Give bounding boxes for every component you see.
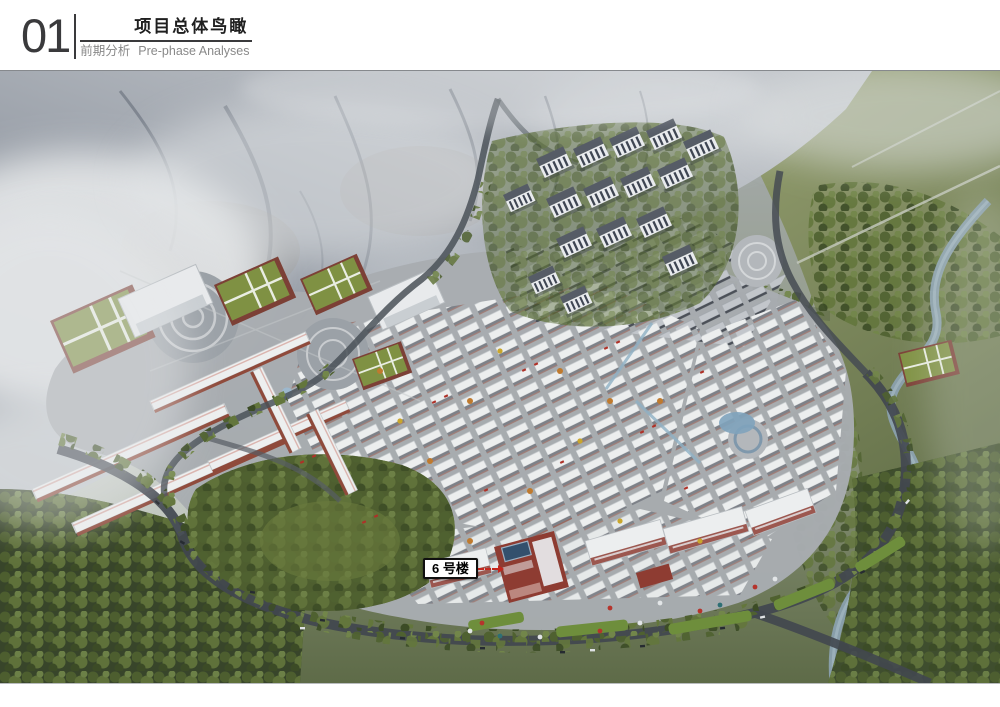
subtitle-zh: 前期分析 bbox=[80, 44, 130, 58]
presentation-page: 01 项目总体鸟瞰 前期分析Pre-phase Analyses bbox=[0, 0, 1000, 707]
aerial-rendering: 6 号楼 bbox=[0, 70, 1000, 684]
pond bbox=[719, 412, 755, 434]
header-title-block: 项目总体鸟瞰 前期分析Pre-phase Analyses bbox=[80, 13, 252, 59]
section-number: 01 bbox=[21, 13, 69, 59]
building-6-label: 6 号楼 bbox=[423, 558, 478, 579]
rendering-canvas bbox=[0, 71, 1000, 683]
page-title: 项目总体鸟瞰 bbox=[80, 16, 252, 38]
subtitle-en: Pre-phase Analyses bbox=[138, 44, 249, 58]
page-header: 01 项目总体鸟瞰 前期分析Pre-phase Analyses bbox=[21, 13, 252, 59]
apartment-towers bbox=[482, 118, 738, 327]
annotation-arrow-line bbox=[478, 568, 498, 570]
header-divider bbox=[74, 14, 76, 59]
page-subtitle: 前期分析Pre-phase Analyses bbox=[80, 43, 252, 59]
building-6-annotation: 6 号楼 bbox=[423, 558, 504, 579]
title-underline bbox=[80, 40, 252, 42]
annotation-arrowhead-icon bbox=[498, 565, 504, 573]
